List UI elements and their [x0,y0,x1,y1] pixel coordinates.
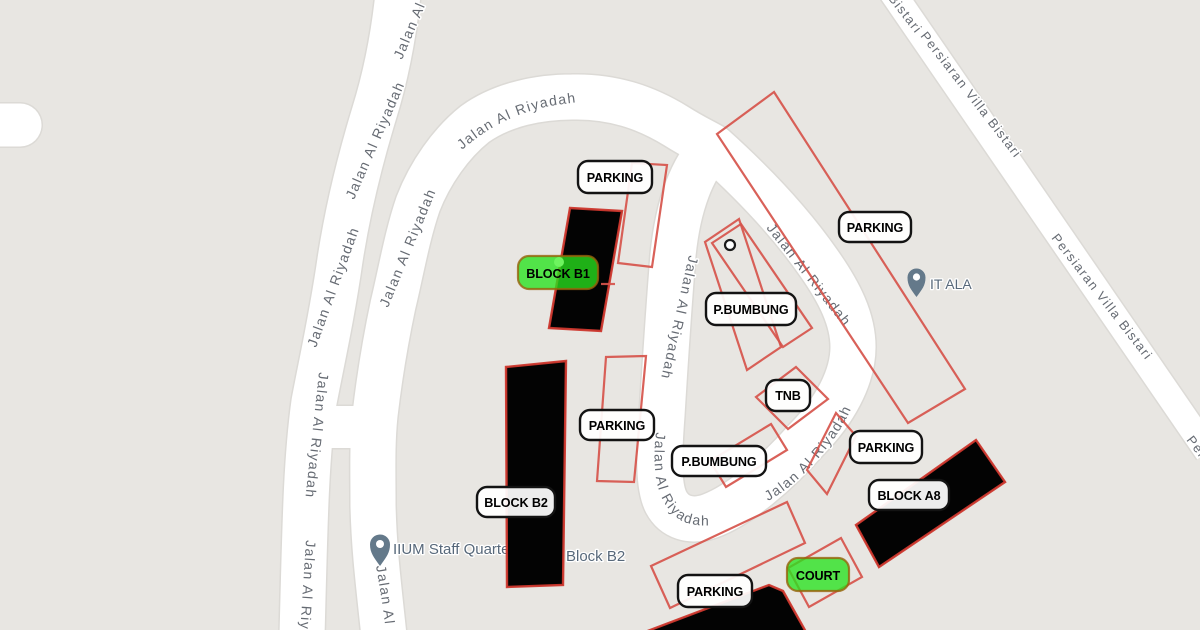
svg-text:IIUM Staff Quarters: IIUM Staff Quarters [393,541,522,558]
svg-text:PARKING: PARKING [587,171,644,185]
svg-text:BLOCK B2: BLOCK B2 [484,496,548,510]
svg-text:PARKING: PARKING [858,441,915,455]
svg-text:PARKING: PARKING [687,585,744,599]
svg-text:COURT: COURT [796,569,841,583]
svg-text:BLOCK B1: BLOCK B1 [526,267,590,281]
svg-text:IT ALA: IT ALA [930,276,972,292]
svg-text:Block B2: Block B2 [566,548,625,565]
svg-text:PARKING: PARKING [847,221,904,235]
svg-text:P.BUMBUNG: P.BUMBUNG [713,303,788,317]
svg-text:TNB: TNB [775,389,801,403]
svg-text:PARKING: PARKING [589,419,646,433]
svg-text:BLOCK A8: BLOCK A8 [877,489,940,503]
svg-text:P.BUMBUNG: P.BUMBUNG [681,455,756,469]
